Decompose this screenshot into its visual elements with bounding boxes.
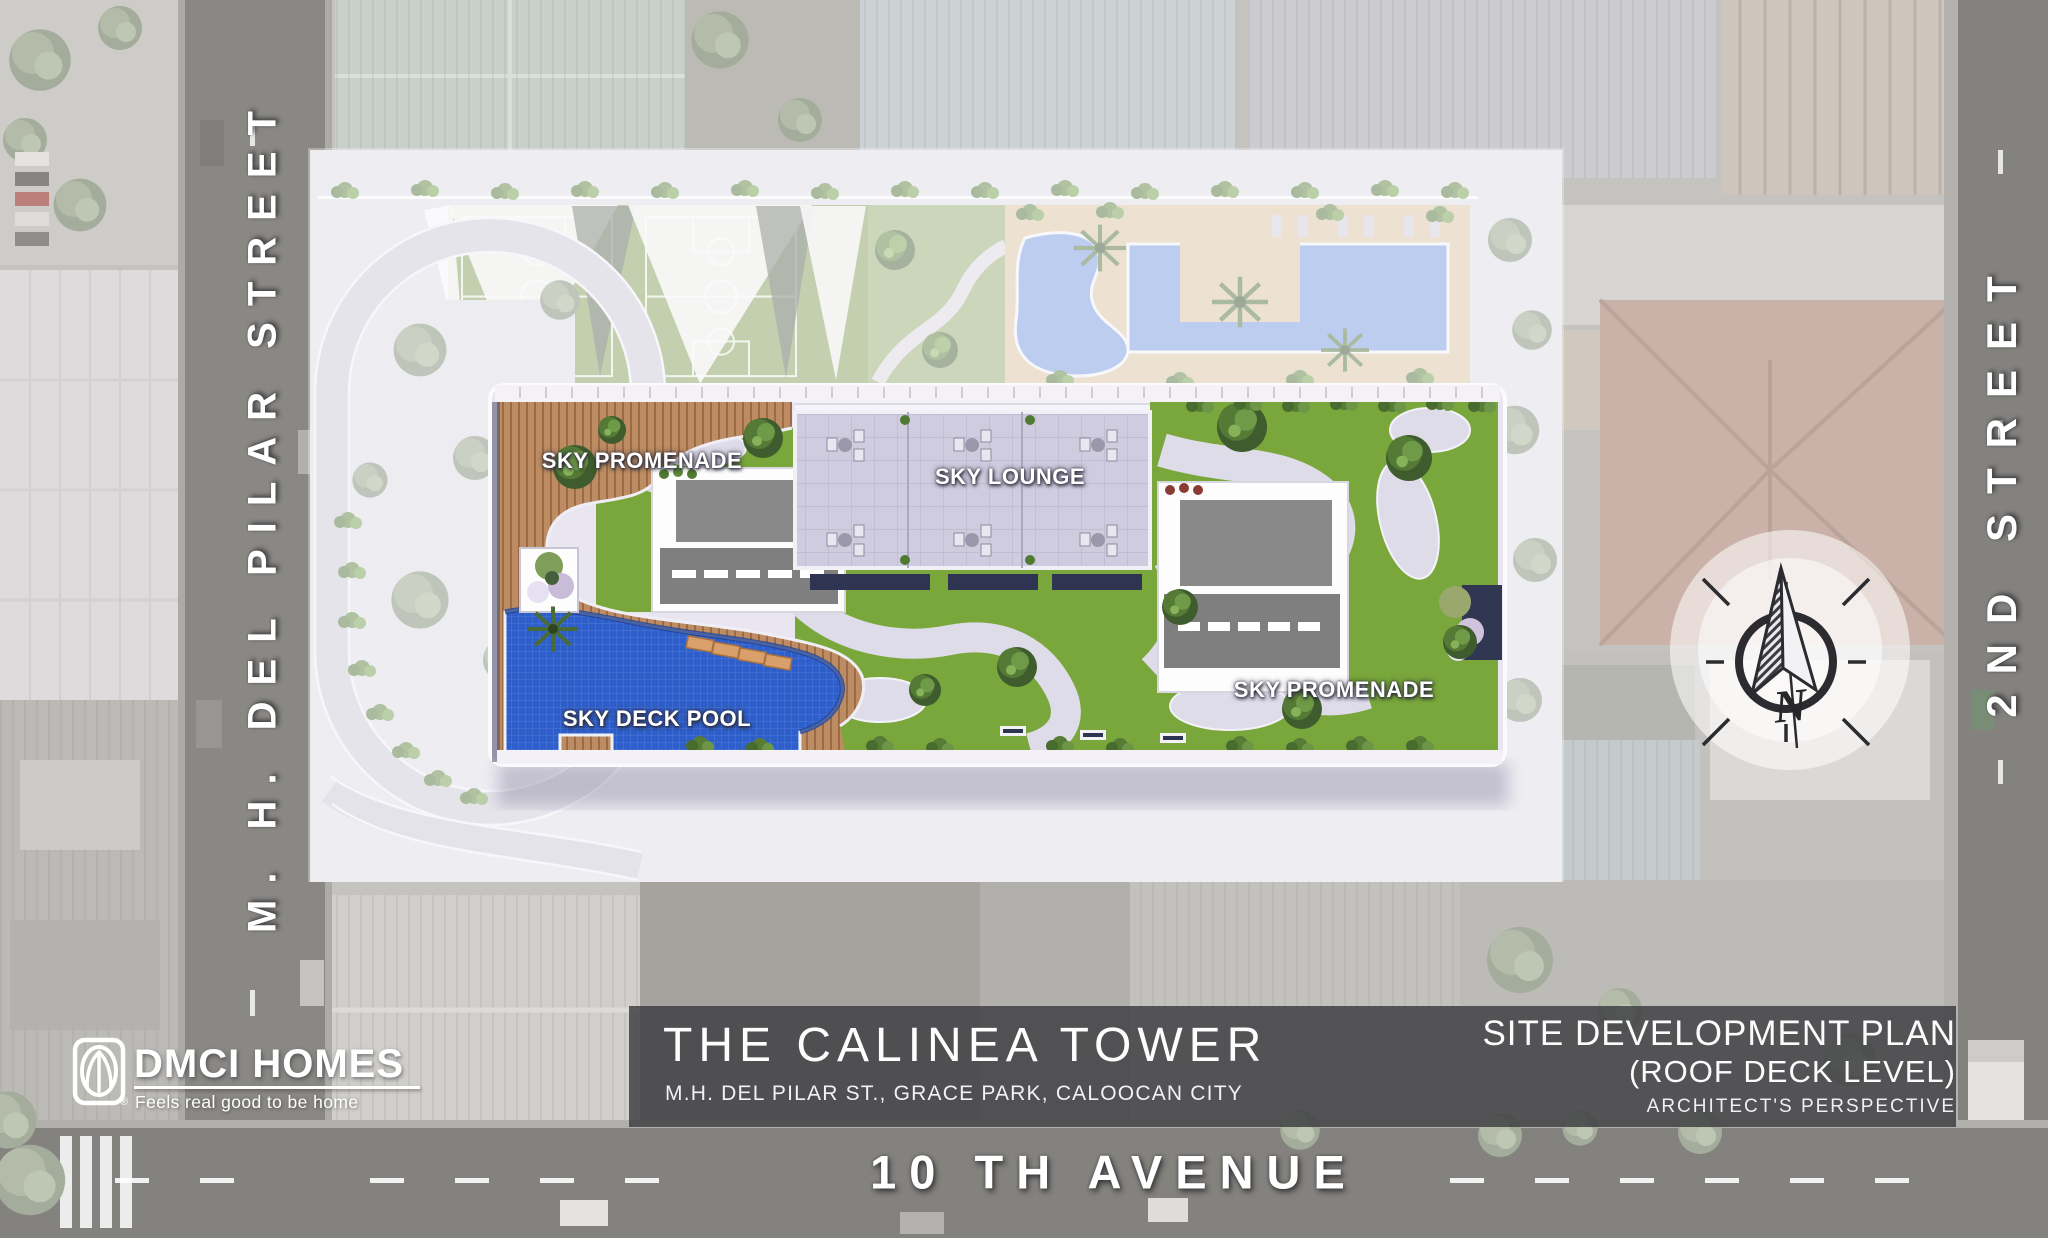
project-address: M.H. DEL PILAR ST., GRACE PARK, CALOOCAN… xyxy=(665,1082,1243,1106)
building-core-right xyxy=(1158,482,1348,692)
tower-shadow xyxy=(498,762,1508,806)
flower-planter xyxy=(520,548,578,612)
deck-label-sky-deck-pool: SKY DECK POOL xyxy=(563,706,751,732)
project-name: THE CALINEA TOWER xyxy=(663,1018,1267,1073)
plan-title: SITE DEVELOPMENT PLAN xyxy=(1482,1014,1956,1054)
site-development-plan-poster: N M. H. DEL PILAR STREET 2ND STREET 10 T… xyxy=(0,0,2048,1238)
street-label-10th-avenue: 10 TH AVENUE xyxy=(870,1145,1358,1200)
title-bar: THE CALINEA TOWER M.H. DEL PILAR ST., GR… xyxy=(629,1006,1956,1127)
street-label-2nd-street: 2ND STREET xyxy=(1978,256,2026,717)
plan-level: (ROOF DECK LEVEL) xyxy=(1629,1054,1956,1090)
brand-underline xyxy=(134,1086,420,1089)
deck-label-sky-promenade-right: SKY PROMENADE xyxy=(1234,677,1434,703)
brand-registered-mark: ® xyxy=(120,1096,128,1108)
street-label-mh-del-pilar: M. H. DEL PILAR STREET xyxy=(241,95,286,933)
compass-area: N xyxy=(1670,530,1910,770)
brand-name: DMCI HOMES xyxy=(134,1042,404,1087)
deck-label-sky-lounge: SKY LOUNGE xyxy=(935,464,1085,490)
plan-view-note: ARCHITECT'S PERSPECTIVE xyxy=(1647,1096,1956,1118)
navy-planter-rows xyxy=(810,574,1142,590)
brand-tagline: Feels real good to be home xyxy=(135,1092,358,1113)
deck-label-sky-promenade-left: SKY PROMENADE xyxy=(542,448,742,474)
